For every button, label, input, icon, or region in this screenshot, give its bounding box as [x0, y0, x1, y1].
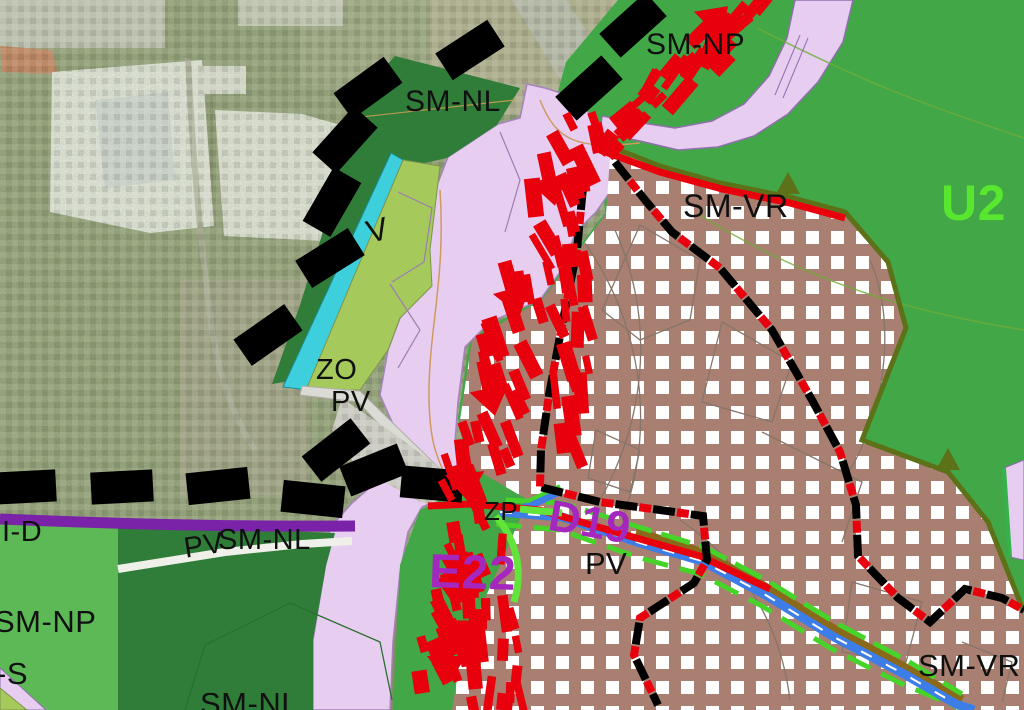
boundary-dash: [185, 467, 250, 505]
zoning-map-canvas[interactable]: SM-NPSM-NLU2SM-VRVZOPVZPD19E22PVSM-VRI-D…: [0, 0, 1024, 710]
red-hatch-dash: [463, 630, 478, 658]
boundary-dash: [90, 469, 154, 504]
red-hatch-dash: [496, 693, 513, 710]
red-hatch-dash: [571, 312, 585, 348]
zone-light-green-sm-np-bl: [0, 520, 118, 710]
map-svg: [0, 0, 1024, 710]
red-hatch-dash: [481, 598, 491, 621]
boundary-dash: [0, 469, 57, 504]
zp-lime-strip-2: [520, 509, 562, 513]
red-hatch-dash: [497, 638, 509, 661]
red-hatch-dash: [577, 275, 593, 303]
boundary-dash: [280, 480, 345, 518]
